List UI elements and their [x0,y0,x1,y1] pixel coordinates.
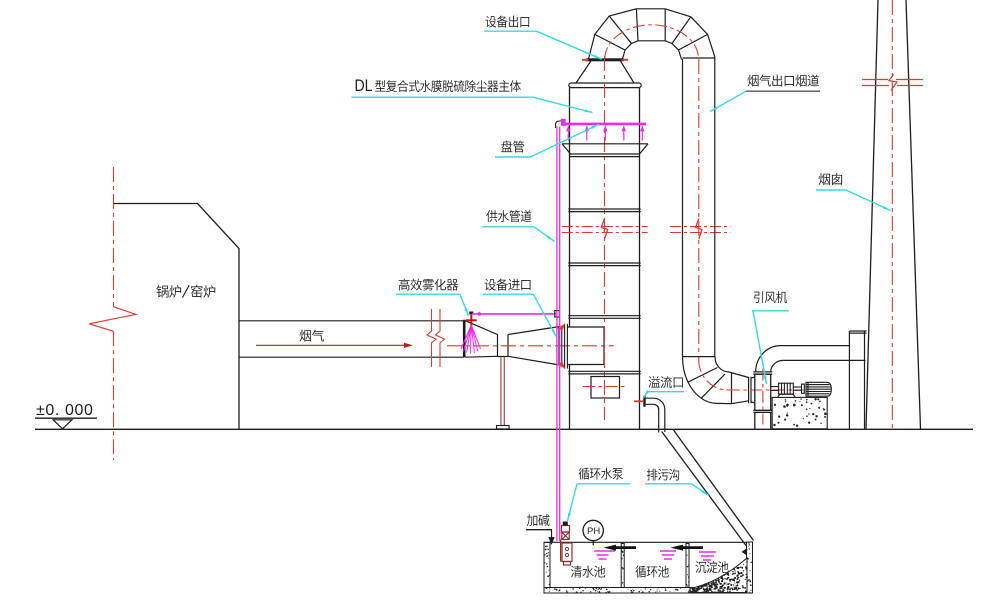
svg-text:±0. 000: ±0. 000 [36,402,93,419]
svg-text:PH: PH [587,526,600,537]
svg-text:DL: DL [355,76,373,95]
